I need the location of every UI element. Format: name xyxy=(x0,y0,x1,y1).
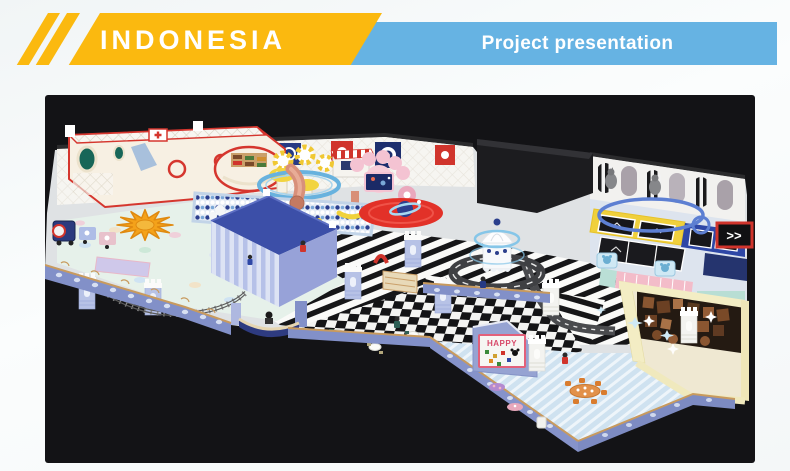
playground-render: >> xyxy=(45,95,755,463)
bear-board xyxy=(597,253,617,268)
cafe-table xyxy=(367,343,383,354)
space-circle-mat xyxy=(359,198,443,228)
title-text: INDONESIA xyxy=(92,22,294,58)
bear-board xyxy=(655,261,675,276)
presentation-slide: Project presentation INDONESIA xyxy=(0,0,790,471)
svg-text:>>: >> xyxy=(726,228,742,243)
svg-text:HAPPY: HAPPY xyxy=(487,339,517,348)
render-panel: >> xyxy=(45,95,755,463)
arrow-sign: >> xyxy=(717,223,752,247)
